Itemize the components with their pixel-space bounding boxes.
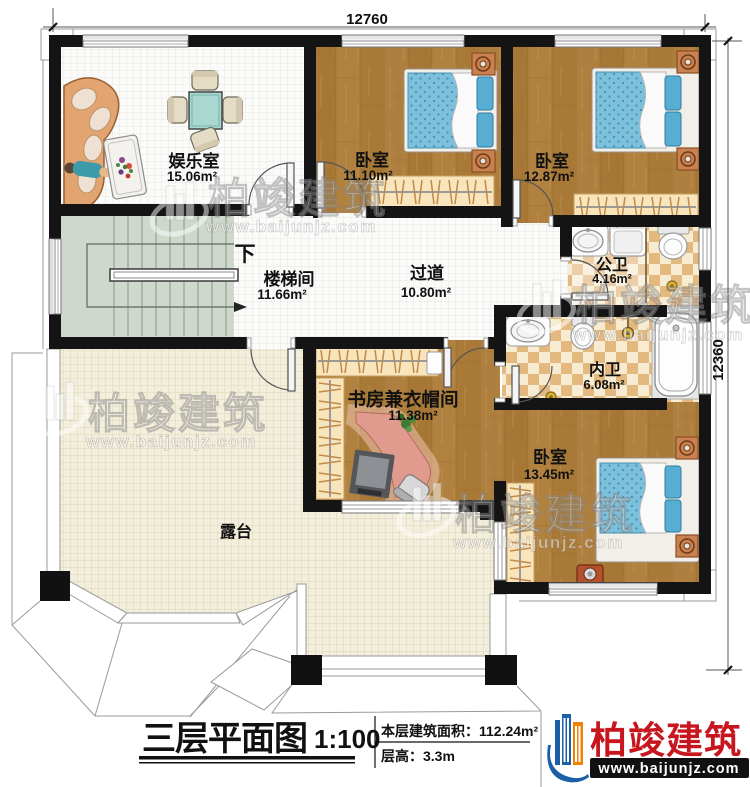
svg-text:11.66m²: 11.66m² (257, 287, 307, 302)
svg-text:12760: 12760 (346, 11, 388, 28)
svg-text:11.38m²: 11.38m² (388, 408, 438, 423)
svg-text:10.80m²: 10.80m² (401, 285, 452, 300)
svg-text:书房兼衣帽间: 书房兼衣帽间 (347, 389, 458, 410)
svg-text:柏竣建筑: 柏竣建筑 (590, 719, 742, 761)
svg-text:层高：3.3m: 层高：3.3m (381, 748, 455, 764)
svg-text:楼梯间: 楼梯间 (264, 269, 315, 289)
svg-text:11.10m²: 11.10m² (343, 168, 393, 183)
svg-text:柏竣建筑: 柏竣建筑 (455, 491, 635, 538)
svg-text:www.baijunjz.com: www.baijunjz.com (452, 533, 624, 552)
svg-text:www.baijunjz.com: www.baijunjz.com (205, 217, 377, 236)
svg-text:1:100: 1:100 (314, 724, 381, 754)
svg-text:www.baijunjz.com: www.baijunjz.com (597, 761, 739, 777)
svg-text:卧室: 卧室 (533, 447, 567, 467)
svg-text:过道: 过道 (410, 263, 444, 283)
svg-text:13.45m²: 13.45m² (524, 467, 575, 482)
svg-text:卧室: 卧室 (355, 150, 389, 170)
svg-text:柏竣建筑: 柏竣建筑 (575, 282, 750, 329)
svg-text:6.08m²: 6.08m² (583, 377, 625, 392)
svg-text:4.16m²: 4.16m² (592, 272, 632, 286)
svg-text:卧室: 卧室 (535, 151, 569, 171)
svg-text:柏竣建筑: 柏竣建筑 (88, 390, 268, 437)
svg-text:12.87m²: 12.87m² (524, 169, 575, 184)
svg-text:www.baijunjz.com: www.baijunjz.com (85, 432, 257, 451)
svg-text:本层建筑面积：112.24m²: 本层建筑面积：112.24m² (381, 723, 538, 739)
svg-text:娱乐室: 娱乐室 (169, 151, 220, 171)
svg-text:露台: 露台 (220, 522, 252, 541)
svg-text:12360: 12360 (710, 339, 727, 381)
svg-text:下: 下 (235, 243, 256, 266)
svg-text:15.06m²: 15.06m² (167, 169, 218, 184)
svg-text:三层平面图: 三层平面图 (142, 720, 307, 758)
